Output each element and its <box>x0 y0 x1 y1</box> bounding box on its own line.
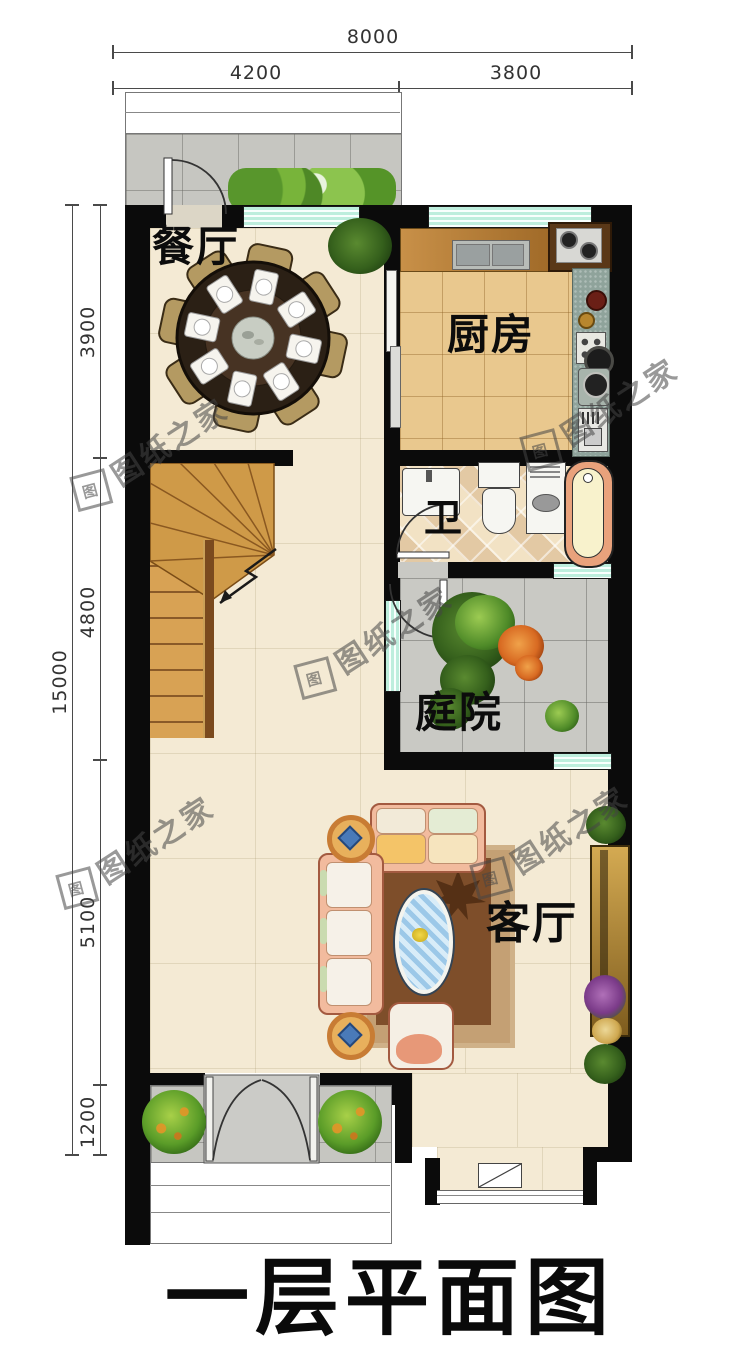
wall-entry-pier <box>395 1073 412 1163</box>
step-line <box>125 112 400 113</box>
armchair-throw <box>396 1034 442 1064</box>
stair-direction-arrow <box>210 545 285 607</box>
sofa-cushion <box>428 808 478 834</box>
dim-tick <box>112 45 114 59</box>
dim-line-left-segments <box>100 205 101 1155</box>
kitchen-sliding-door <box>390 346 401 428</box>
step-symbol <box>478 1163 522 1188</box>
porch-top-steps <box>125 92 402 137</box>
dim-left-total: 15000 <box>49 637 71 727</box>
dim-tick <box>93 1084 107 1086</box>
potted-plant-dining <box>328 218 392 274</box>
watermark-seal: 图 <box>519 428 563 472</box>
watermark-seal: 图 <box>293 656 337 700</box>
dim-tick <box>112 81 114 95</box>
floor-plan-canvas: 8000 4200 3800 15000 3900 4800 5100 1200 <box>0 0 750 1358</box>
entry-door-swing <box>160 150 230 218</box>
dim-top-seg2: 3800 <box>466 62 566 84</box>
dim-tick <box>93 204 107 206</box>
gold-vase <box>592 1018 622 1044</box>
entry-bush <box>318 1090 382 1154</box>
courtyard-flowers <box>515 655 543 681</box>
sofa-cushion <box>376 808 426 834</box>
dim-top-total: 8000 <box>323 26 423 48</box>
porch-bottom-steps <box>150 1162 392 1244</box>
toilet-tank <box>478 462 520 488</box>
bath-label: 卫 <box>424 500 464 538</box>
table-flowers <box>412 928 428 942</box>
lumbar-pillow <box>320 918 327 944</box>
courtyard-shrub <box>545 700 579 732</box>
faucet <box>426 470 432 482</box>
entry-bush <box>142 1090 206 1154</box>
dim-line-left-total <box>72 205 73 1155</box>
wall-alcove-right <box>583 1162 597 1205</box>
step-line <box>150 1185 390 1186</box>
watermark-seal: 图 <box>69 468 113 512</box>
cooking-pot <box>578 312 595 329</box>
dim-tick <box>631 81 633 95</box>
kitchen-label: 厨房 <box>447 314 535 356</box>
plan-title: 一层平面图 <box>120 1256 660 1340</box>
sofa-seat <box>428 834 478 864</box>
watermark-seal: 图 <box>469 856 513 900</box>
tv-wall-plant <box>584 1044 626 1084</box>
double-entry-door <box>203 1074 320 1166</box>
dim-tick <box>93 759 107 761</box>
lumbar-pillow <box>320 870 327 896</box>
bathtub-drain <box>583 473 593 483</box>
toilet-bowl <box>482 488 516 534</box>
cooking-pan <box>586 290 607 311</box>
dim-left-seg2: 4800 <box>77 577 99 647</box>
dim-line-top-total <box>113 52 632 53</box>
coffee-table <box>395 890 453 994</box>
step-line <box>150 1212 390 1213</box>
courtyard-label: 庭院 <box>415 692 503 734</box>
entry-hall-floor <box>412 1073 608 1147</box>
dim-left-seg1: 3900 <box>77 297 99 367</box>
dim-tick <box>65 204 79 206</box>
sofa-cushion <box>326 958 372 1006</box>
washer-drum <box>532 494 560 512</box>
kitchen-sliding-door <box>386 270 397 352</box>
burner <box>580 242 598 260</box>
dim-top-seg1: 4200 <box>206 62 306 84</box>
dining-room-label: 餐厅 <box>152 226 240 268</box>
watermark-seal: 图 <box>55 866 99 910</box>
sofa-cushion <box>326 910 372 956</box>
sliding-door-track <box>437 1190 583 1204</box>
sink-bowl <box>492 244 524 266</box>
flower-arrangement <box>584 975 626 1019</box>
dim-left-seg4: 1200 <box>77 1087 99 1157</box>
window-courtyard-bottom <box>553 753 612 770</box>
burner <box>560 231 578 249</box>
dim-line-top-segments <box>113 88 632 89</box>
sofa-cushion <box>326 862 372 908</box>
dim-tick <box>631 45 633 59</box>
wall-alcove-top <box>583 1147 632 1162</box>
sliding-door-line <box>437 1195 583 1196</box>
lumbar-pillow <box>320 966 327 992</box>
wall-left <box>125 205 150 1245</box>
living-room-label: 客厅 <box>486 902 578 946</box>
sink-bowl <box>456 244 490 266</box>
